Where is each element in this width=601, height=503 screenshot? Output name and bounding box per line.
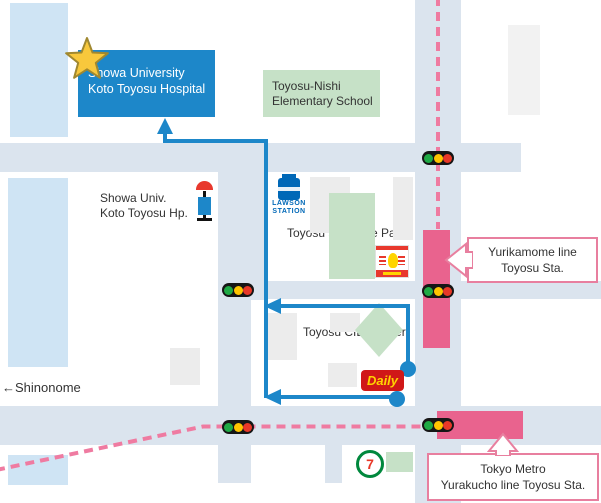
callout-arrow-up-icon — [486, 432, 520, 456]
callout-arrow-left-icon — [443, 240, 473, 280]
park-green-area — [329, 193, 375, 279]
traffic-light-icon — [222, 420, 254, 434]
market-logo-bottom-text — [383, 272, 401, 275]
school-name-line2: Elementary School — [272, 94, 380, 109]
lawson-logo-text-line2: STATION — [266, 208, 312, 216]
building-block — [508, 25, 540, 115]
bus-stop-icon — [193, 181, 215, 223]
market-logo — [375, 245, 409, 278]
tokyo-metro-callout-line2: Yurakucho line Toyosu Sta. — [429, 477, 597, 493]
route-arrow-up — [157, 118, 173, 134]
lawson-logo-text-line1: LAWSON — [266, 200, 312, 208]
market-logo-top-stripe — [376, 246, 408, 250]
building-block — [8, 455, 68, 485]
market-logo-left-text — [379, 256, 386, 265]
traffic-light-icon — [422, 418, 454, 432]
daily-yamazaki-logo: Daily — [361, 370, 404, 391]
yurikamome-callout-line2: Toyosu Sta. — [469, 260, 596, 276]
seven-eleven-logo: 7 — [356, 450, 384, 478]
building-block — [170, 348, 200, 385]
bus-stop-dome — [196, 181, 213, 190]
route-dot-exit6a — [389, 391, 405, 407]
seven-eleven-logo-text: 7 — [366, 457, 374, 471]
traffic-light-icon — [422, 284, 454, 298]
daily-logo-text: Daily — [367, 373, 398, 388]
traffic-light-icon — [422, 151, 454, 165]
access-map: Showa University Koto Toyosu Hospital To… — [0, 0, 601, 503]
tokyo-metro-callout: Tokyo Metro Yurakucho line Toyosu Sta. — [427, 453, 599, 501]
road-stub-bottom — [325, 445, 342, 483]
school-name-line1: Toyosu-Nishi — [272, 79, 380, 94]
building-block — [8, 178, 68, 367]
lawson-station-logo: LAWSON STATION — [266, 174, 312, 222]
yurikamome-callout-line1: Yurikamome line — [469, 244, 596, 260]
school-box: Toyosu-Nishi Elementary School — [263, 70, 380, 117]
lawson-can-icon — [276, 174, 302, 200]
tokyo-metro-callout-line1: Tokyo Metro — [429, 461, 597, 477]
building-block — [330, 313, 360, 332]
traffic-light-icon — [222, 283, 254, 297]
market-logo-right-text — [398, 256, 405, 265]
building-block — [268, 313, 297, 360]
ciel-tower-green-diamond — [355, 303, 403, 357]
road-vertical-center-lower — [218, 300, 251, 483]
road-horizontal-middle — [218, 281, 601, 299]
green-area — [386, 452, 413, 472]
road-vertical-center-upper — [218, 143, 266, 300]
market-logo-mascot — [388, 253, 398, 268]
building-block — [393, 177, 413, 240]
bus-stop-base — [197, 218, 212, 221]
star-icon — [60, 32, 116, 88]
building-block — [328, 363, 357, 387]
yurikamome-callout: Yurikamome line Toyosu Sta. — [467, 237, 598, 283]
bus-stop-sign — [198, 197, 211, 215]
